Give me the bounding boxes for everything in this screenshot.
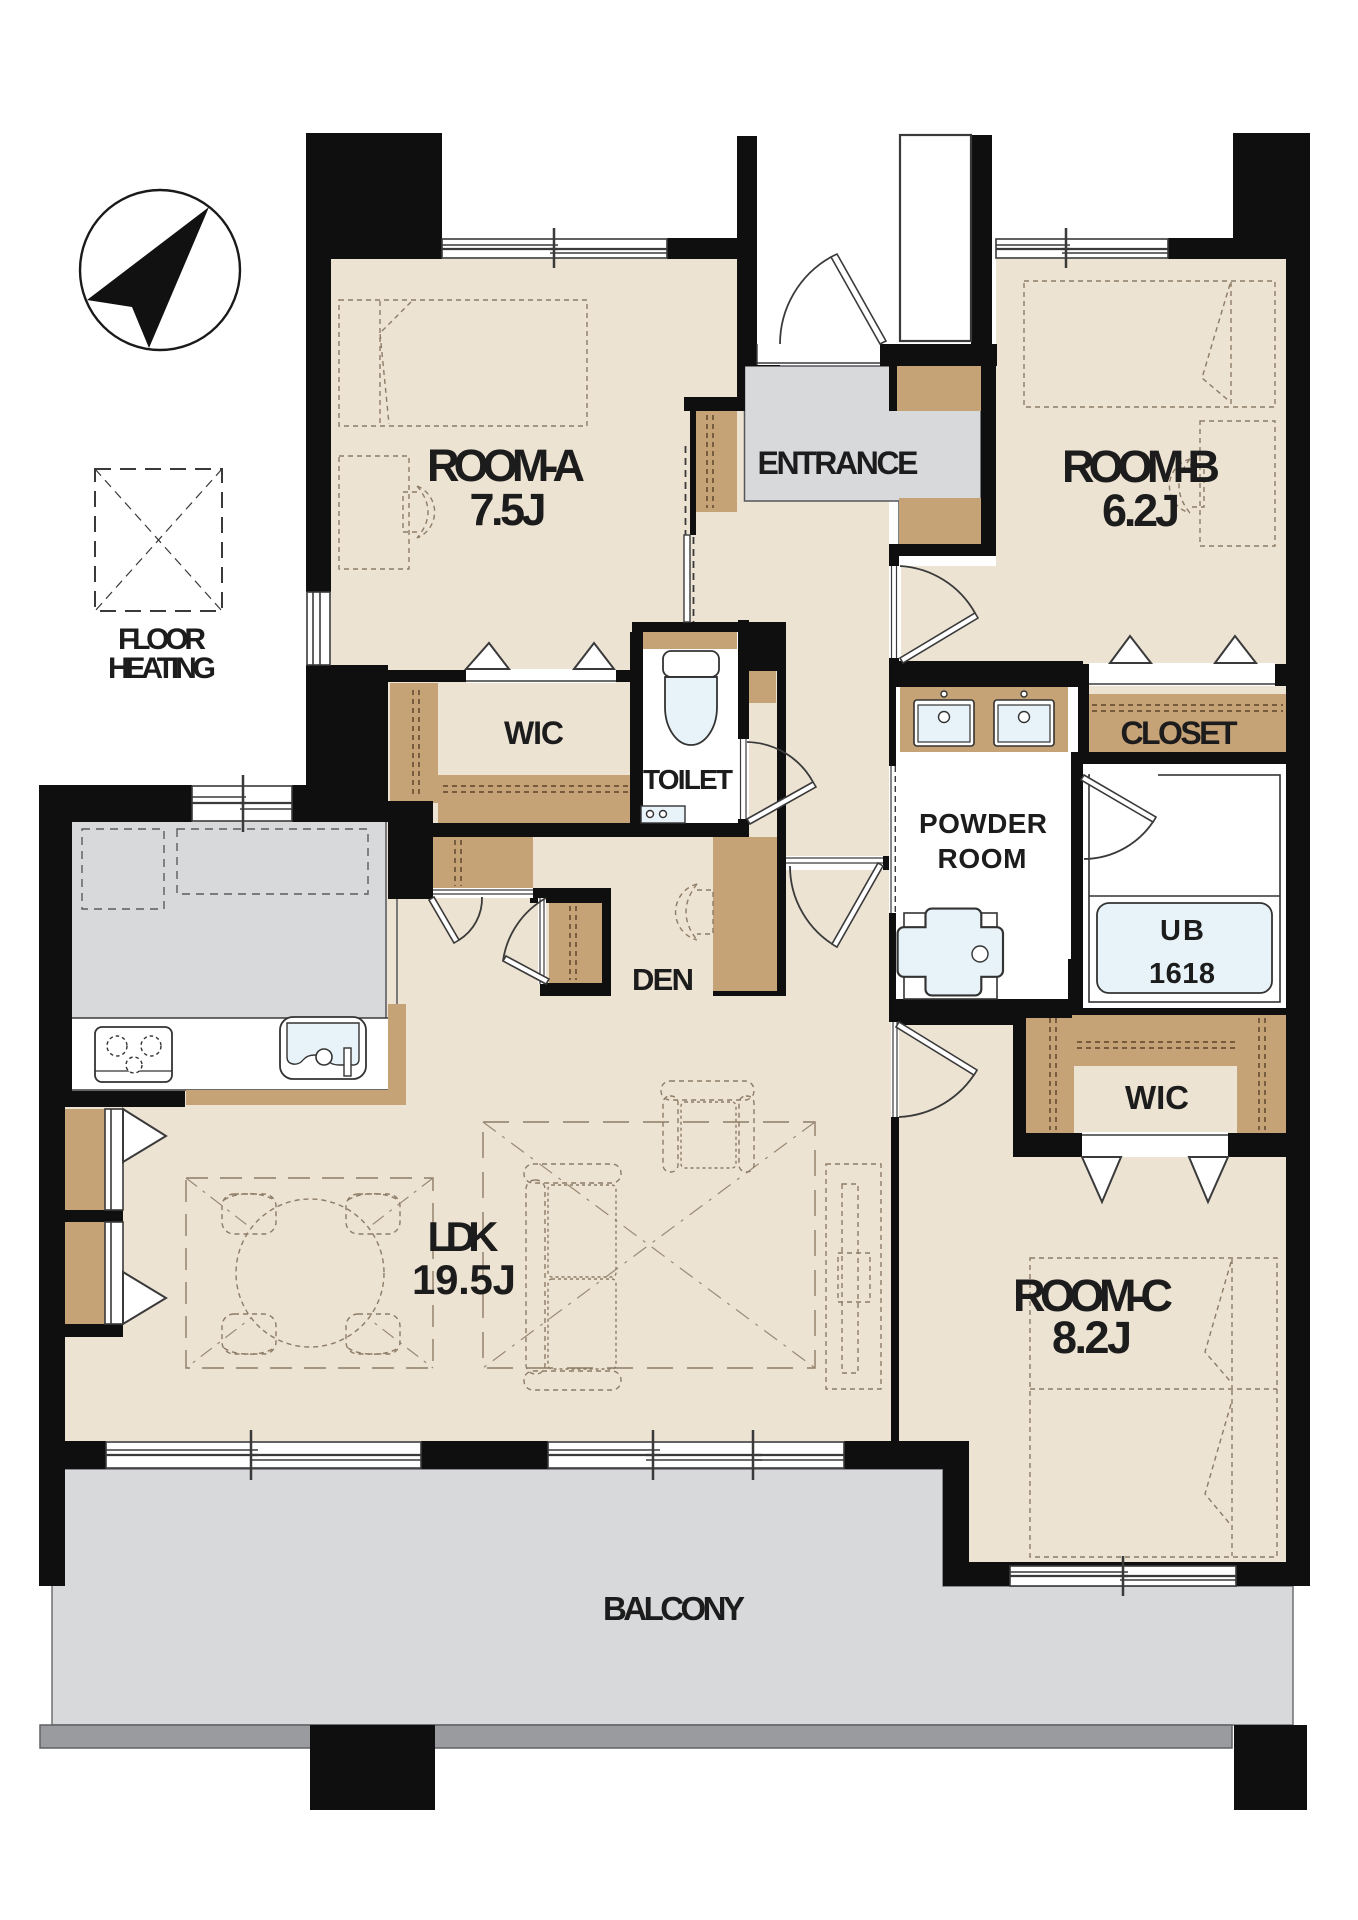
svg-text:LDK: LDK xyxy=(428,1213,499,1260)
svg-text:ROOM: ROOM xyxy=(938,843,1027,874)
svg-text:CLOSET: CLOSET xyxy=(1121,715,1238,751)
svg-text:WIC: WIC xyxy=(504,715,564,751)
svg-text:HEATING: HEATING xyxy=(108,652,216,685)
svg-text:1618: 1618 xyxy=(1149,958,1215,990)
svg-text:8.2J: 8.2J xyxy=(1052,1312,1132,1363)
svg-text:WIC: WIC xyxy=(1125,1079,1189,1116)
svg-text:6.2J: 6.2J xyxy=(1102,485,1180,536)
svg-text:7.5J: 7.5J xyxy=(470,484,547,535)
svg-text:BALCONY: BALCONY xyxy=(603,1590,745,1627)
svg-text:TOILET: TOILET xyxy=(643,764,733,795)
svg-text:19.5J: 19.5J xyxy=(412,1256,516,1303)
svg-text:POWDER: POWDER xyxy=(919,808,1047,839)
svg-text:ENTRANCE: ENTRANCE xyxy=(758,445,919,481)
svg-text:DEN: DEN xyxy=(632,962,694,997)
